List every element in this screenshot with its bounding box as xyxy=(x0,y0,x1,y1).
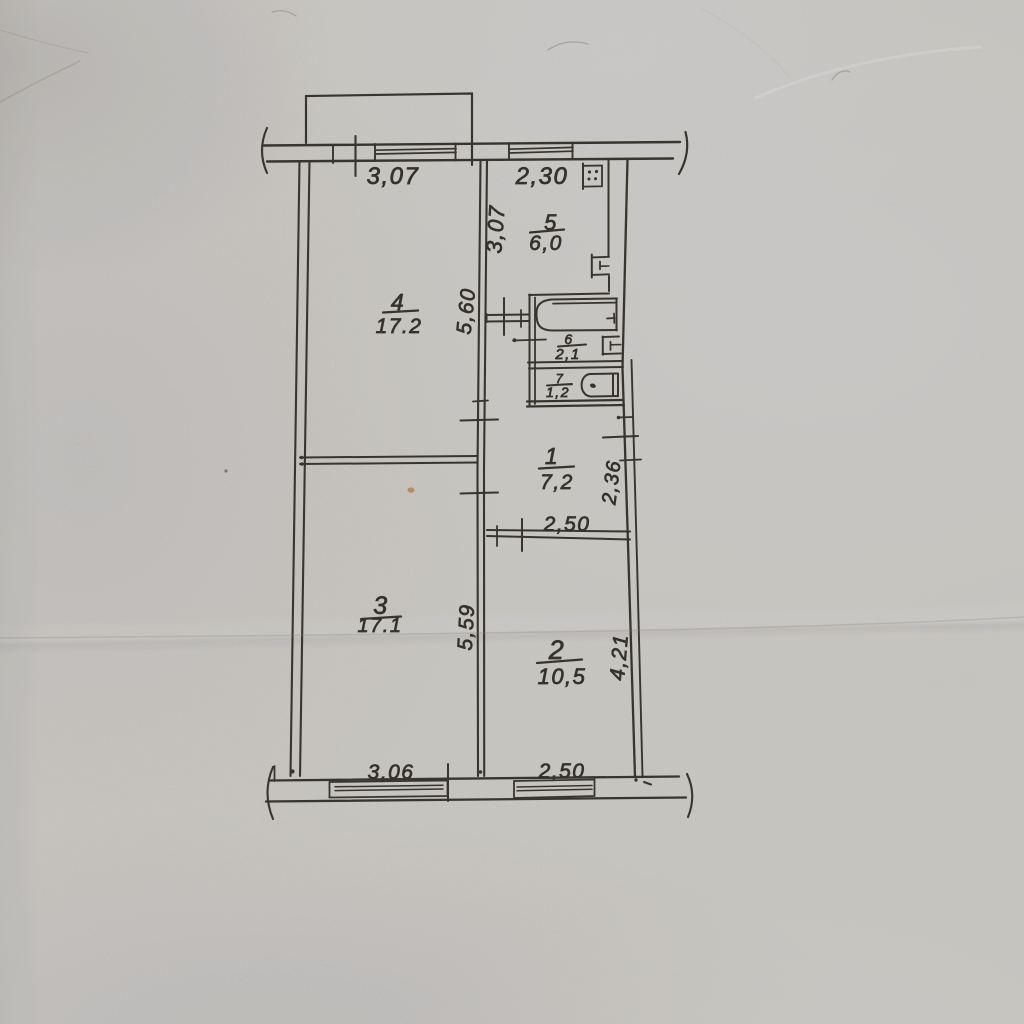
svg-text:3,06: 3,06 xyxy=(368,761,415,784)
svg-text:1,2: 1,2 xyxy=(546,384,570,400)
svg-text:2,50: 2,50 xyxy=(538,760,586,783)
svg-text:5,59: 5,59 xyxy=(454,603,479,651)
svg-text:2,30: 2,30 xyxy=(515,163,569,190)
svg-text:10,5: 10,5 xyxy=(538,664,587,689)
svg-text:5,60: 5,60 xyxy=(453,287,481,336)
svg-text:2,36: 2,36 xyxy=(598,458,625,506)
svg-text:3,07: 3,07 xyxy=(367,163,420,190)
svg-text:2,1: 2,1 xyxy=(554,346,580,363)
svg-text:1: 1 xyxy=(545,443,559,469)
svg-text:7,2: 7,2 xyxy=(540,471,574,494)
svg-text:2,50: 2,50 xyxy=(543,513,591,536)
svg-text:3,07: 3,07 xyxy=(481,204,509,254)
svg-text:17.2: 17.2 xyxy=(376,315,423,338)
svg-text:6,0: 6,0 xyxy=(529,232,563,255)
svg-text:4,21: 4,21 xyxy=(606,633,633,682)
